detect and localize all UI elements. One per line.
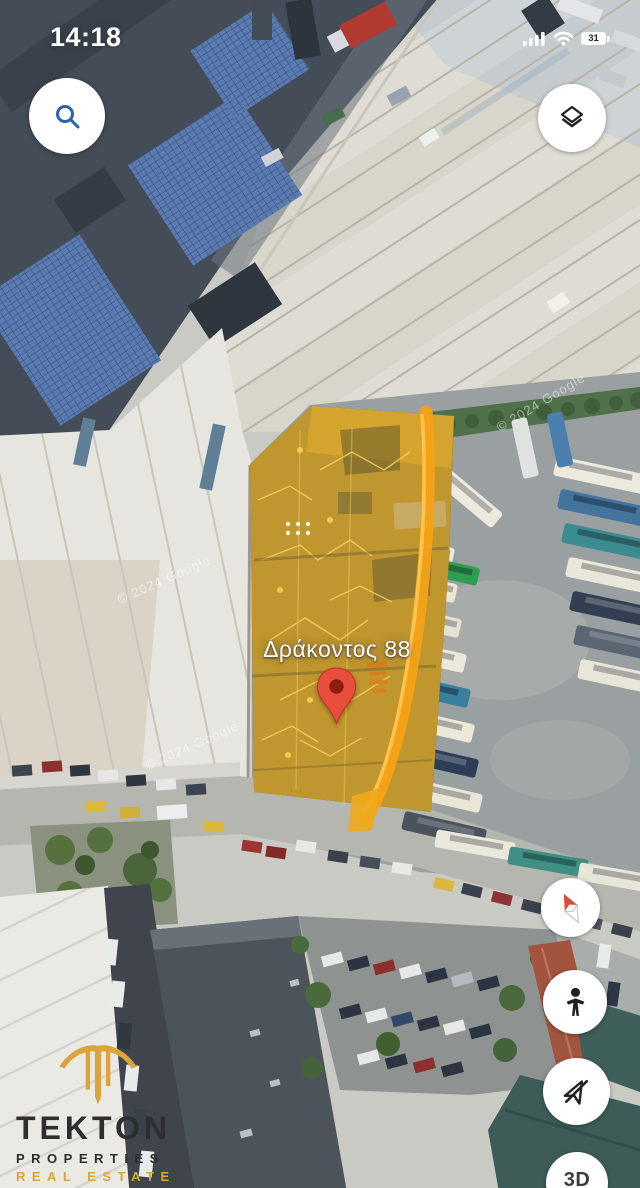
tekton-logo-icon: [54, 1036, 142, 1108]
compass-button[interactable]: [541, 878, 600, 937]
signal-bars-icon: [523, 31, 546, 46]
tekton-watermark: TEKTON PROPERTIES REAL ESTATE: [16, 1036, 216, 1184]
location-disabled-button[interactable]: [543, 1058, 610, 1125]
highlighted-parcel: [250, 406, 454, 832]
address-label: Δράκοντος 88: [263, 636, 411, 663]
search-icon: [52, 101, 82, 131]
compass-needle-icon: [552, 889, 590, 927]
map-pin[interactable]: [314, 666, 359, 728]
pegman-icon: [560, 987, 591, 1018]
google-maps-satellite-screen: © 2024 Google © 2024 Google © 2024 Googl…: [0, 0, 640, 1188]
battery-percent: 31: [588, 34, 599, 44]
brand-line3: REAL ESTATE: [16, 1169, 216, 1184]
layers-icon: [557, 103, 587, 133]
search-button[interactable]: [29, 78, 105, 154]
wifi-icon: [553, 31, 574, 46]
location-off-icon: [560, 1075, 593, 1108]
brand-line2: PROPERTIES: [16, 1151, 216, 1166]
brand-name: TEKTON: [16, 1110, 216, 1147]
street-view-pegman-button[interactable]: [543, 970, 607, 1034]
layers-button[interactable]: [538, 84, 606, 152]
clock: 14:18: [50, 22, 122, 53]
battery-icon: 31: [581, 32, 606, 45]
three-d-label: 3D: [564, 1169, 591, 1188]
